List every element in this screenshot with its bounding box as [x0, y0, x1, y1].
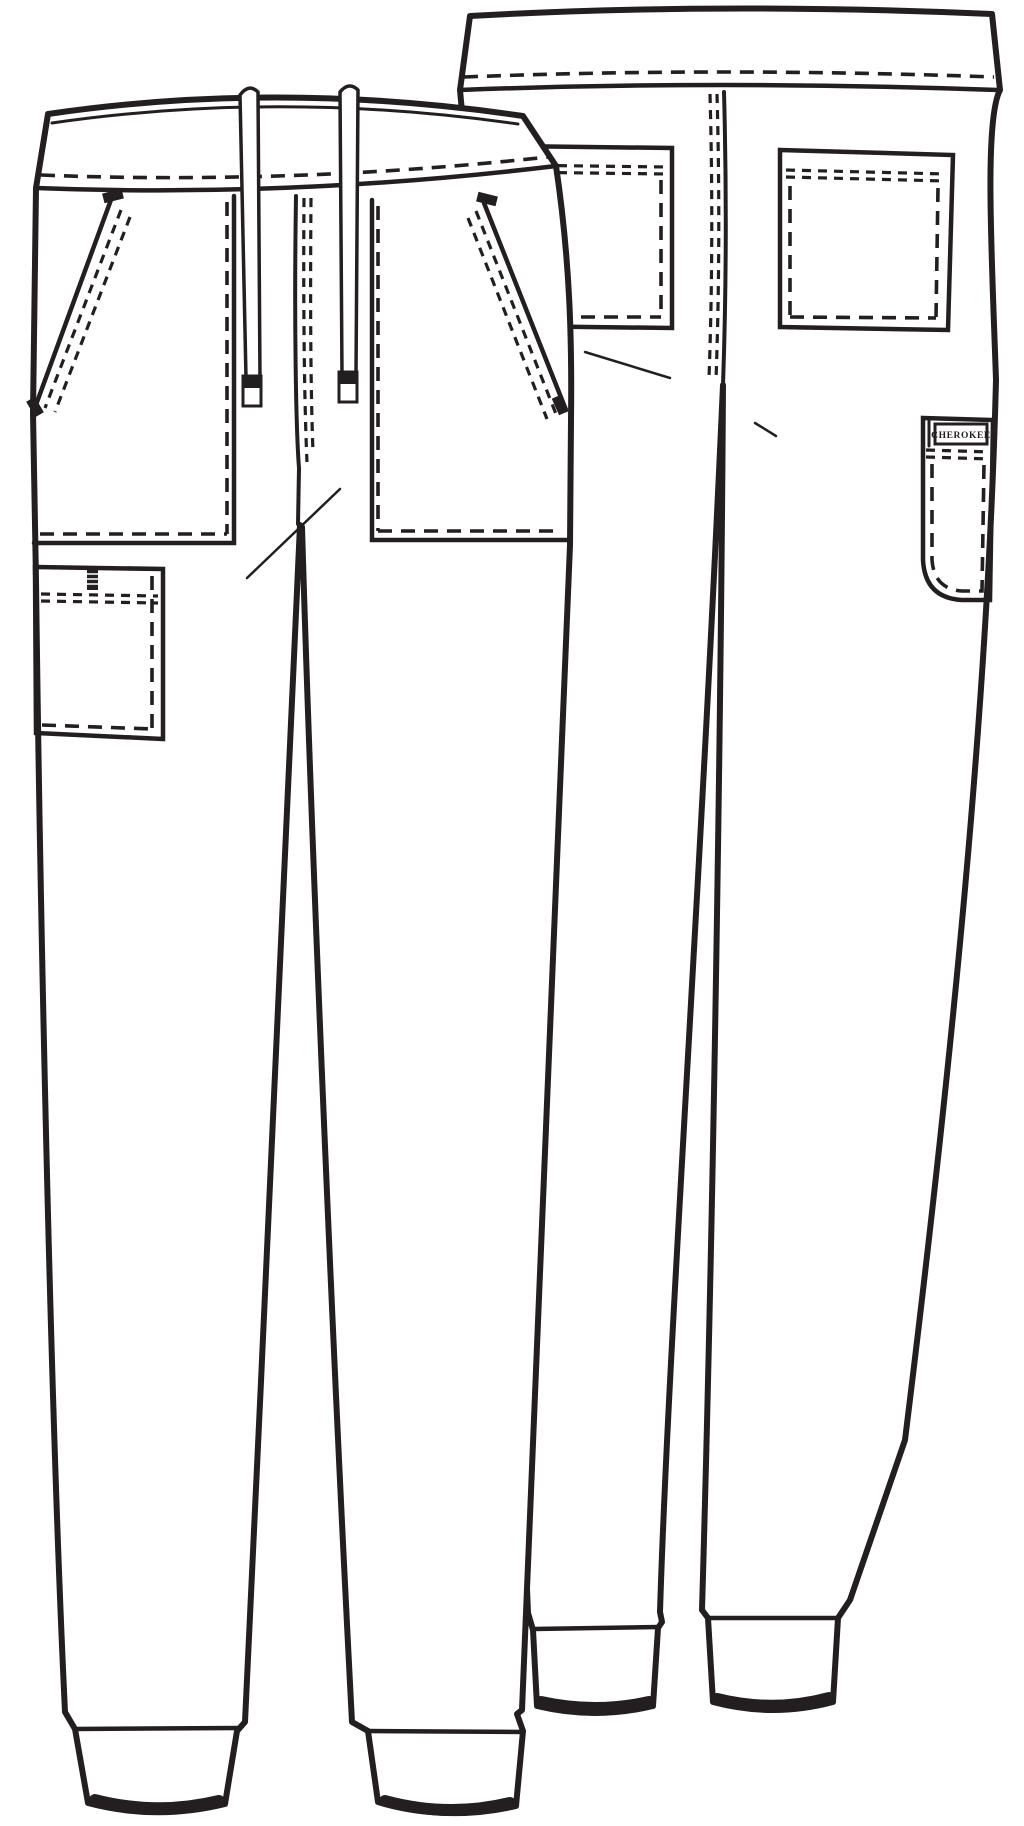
brand-label: CHEROKEE: [931, 431, 991, 441]
front-right-cuff-top-line: [368, 1731, 523, 1732]
front-view: [26, 86, 571, 1813]
drawstring-left-aglet: [243, 376, 261, 406]
jogger-pants-technical-drawing: CHEROKEE: [0, 0, 1024, 1826]
front-silhouette: [33, 97, 571, 1813]
front-left-cuff-top-line: [75, 1728, 238, 1729]
drawstring-right-aglet: [339, 372, 357, 402]
back-left-cuff-hem: [541, 1702, 649, 1708]
back-left-cuff-top-line: [533, 1627, 658, 1629]
flat-sketch-canvas: CHEROKEE: [0, 0, 1024, 1826]
drawstring-right-tail: [340, 86, 358, 374]
